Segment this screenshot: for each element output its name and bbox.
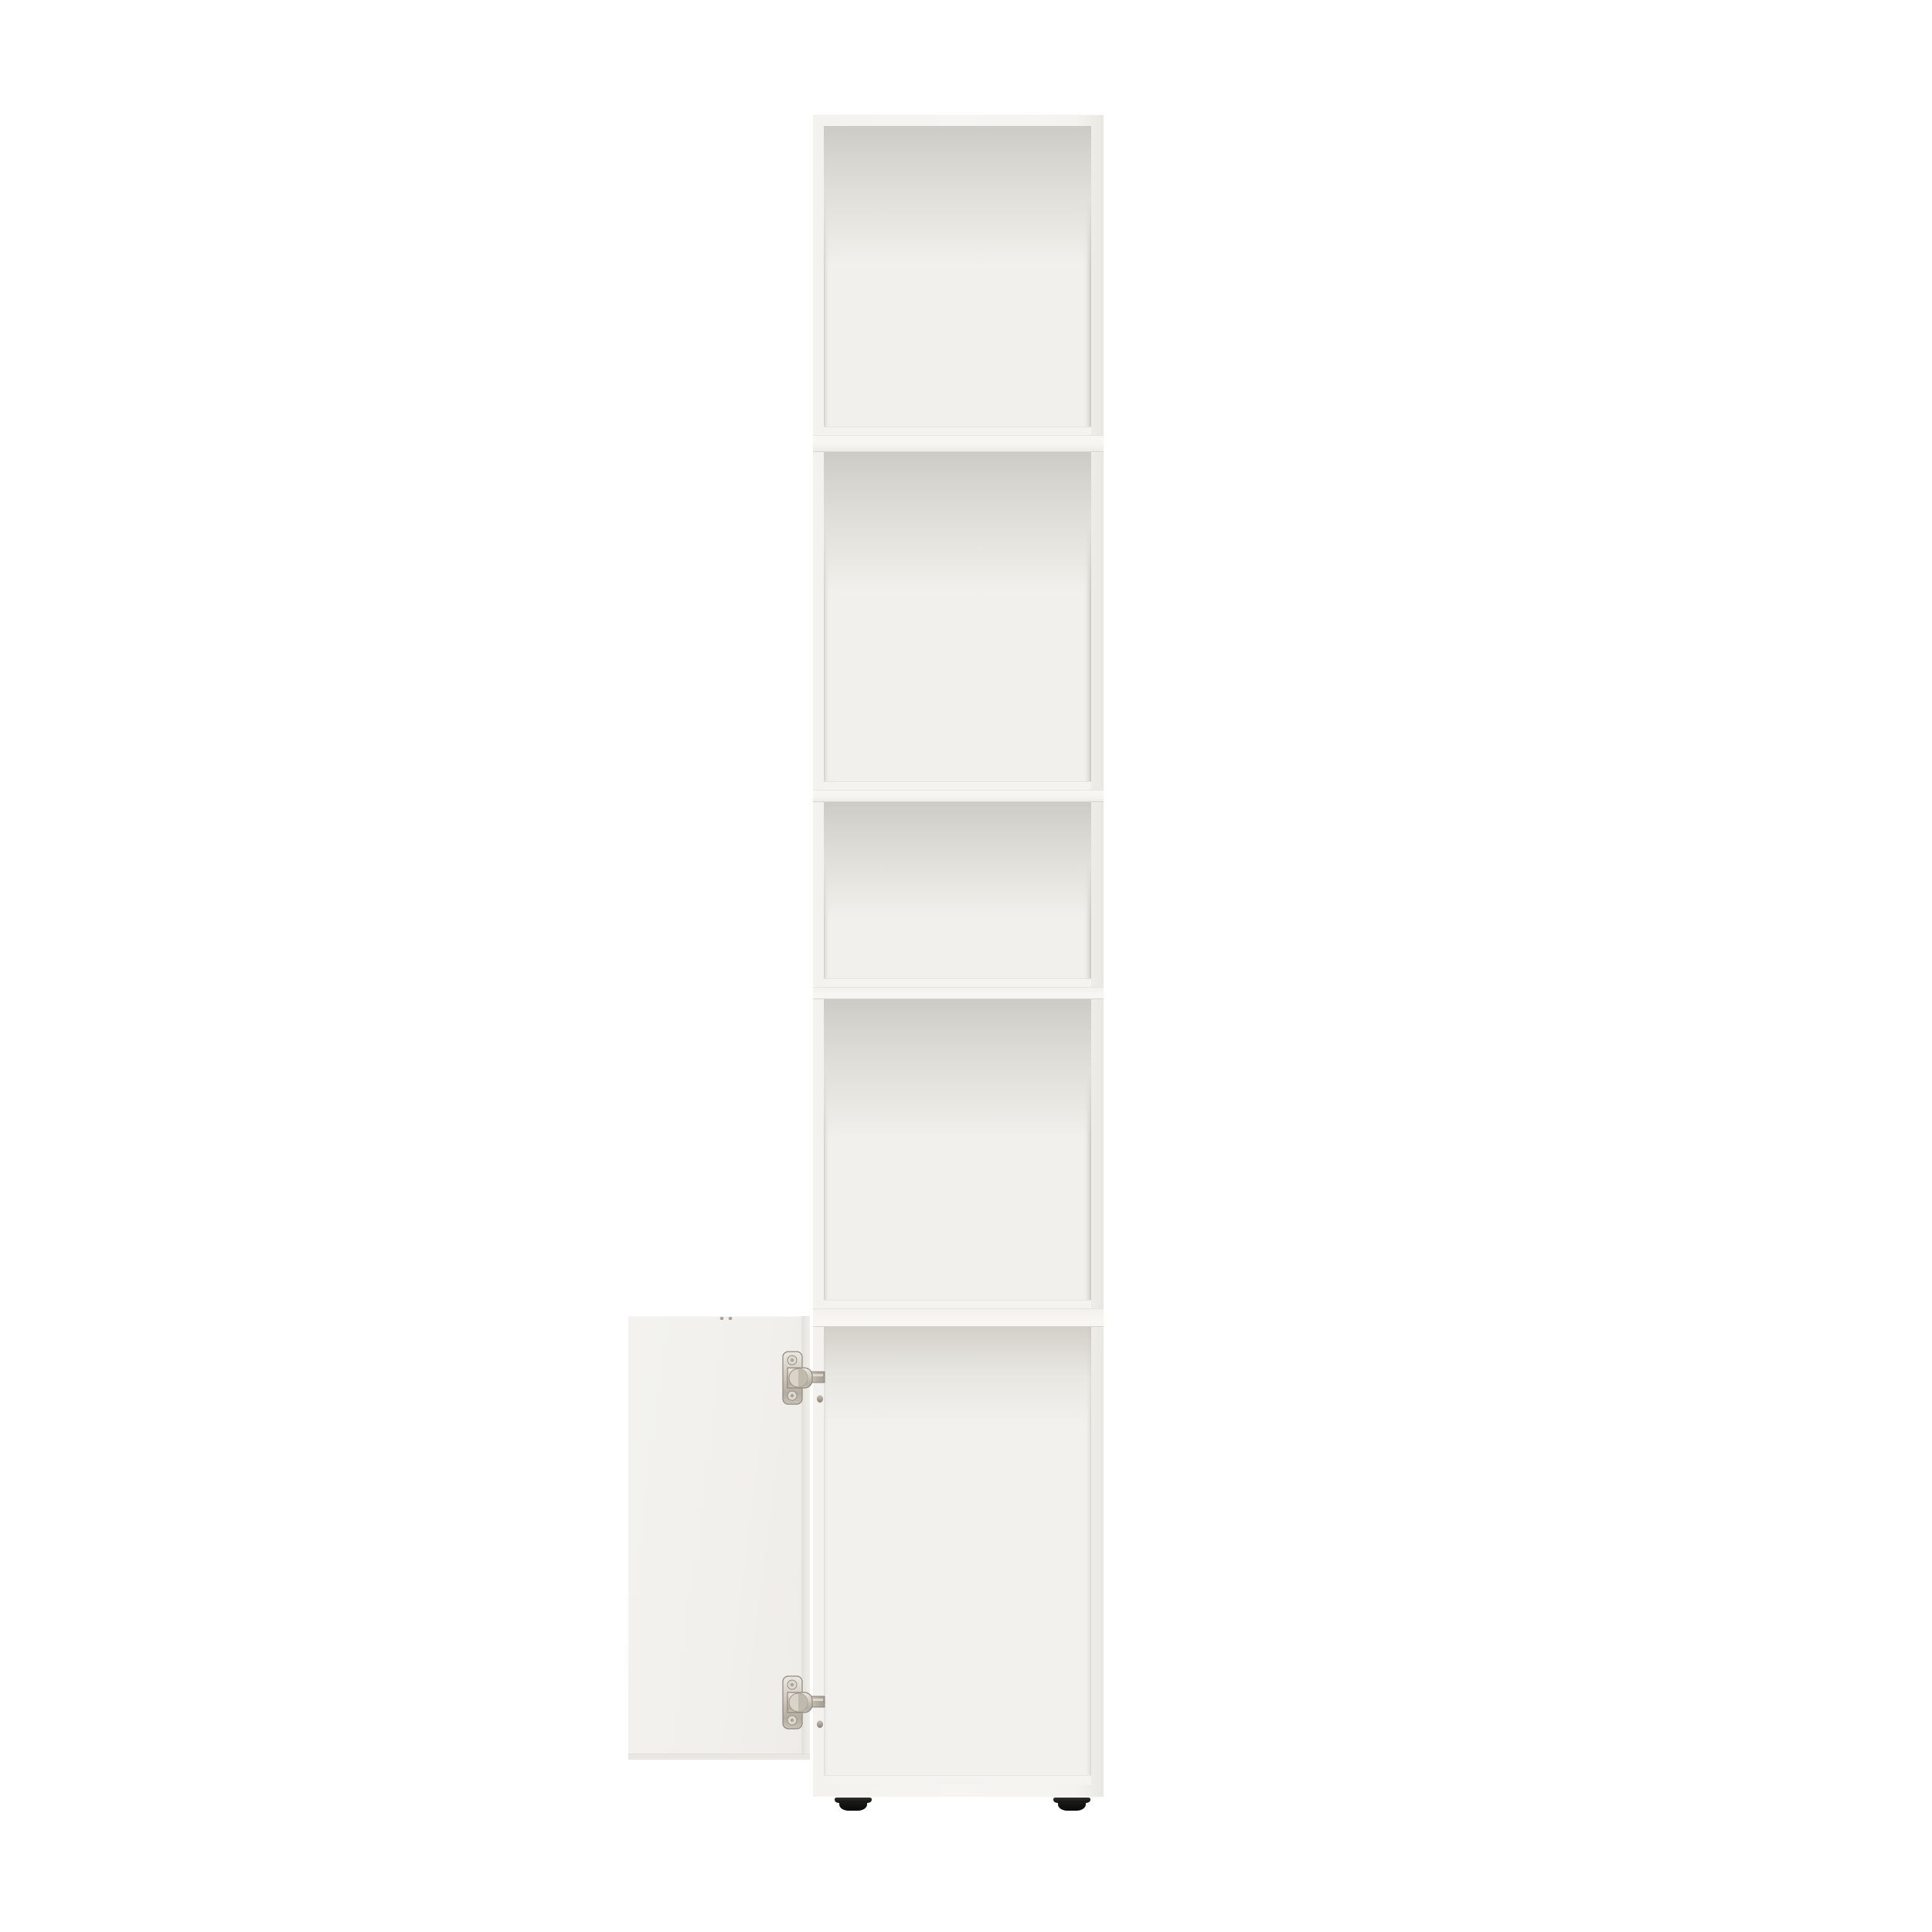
- open-compartment-2: [824, 452, 1091, 790]
- open-compartment-1: [824, 126, 1091, 435]
- door-hinge-top: [781, 1351, 826, 1405]
- adjustable-foot-left: [835, 1798, 872, 1811]
- cabinet-body: [813, 114, 1104, 1797]
- open-compartment-4: [824, 999, 1091, 1308]
- door-bottom-edge: [628, 1753, 810, 1760]
- foot-base: [839, 1802, 867, 1811]
- shelf-divider-1: [813, 435, 1104, 452]
- product-photo-scene: [0, 0, 1932, 1932]
- bottom-compartment-interior: [824, 1327, 1091, 1785]
- shelf-divider-2: [813, 790, 1104, 802]
- shelf-above-door: [813, 1308, 1104, 1327]
- open-compartment-3: [824, 802, 1091, 987]
- adjustable-foot-right: [1053, 1798, 1090, 1811]
- door-hinge-bottom: [781, 1675, 826, 1730]
- door-edge-drill-holes: [719, 1317, 733, 1320]
- cabinet-door-open: [628, 1316, 810, 1760]
- foot-base: [1058, 1802, 1086, 1811]
- shelf-divider-3: [813, 987, 1104, 999]
